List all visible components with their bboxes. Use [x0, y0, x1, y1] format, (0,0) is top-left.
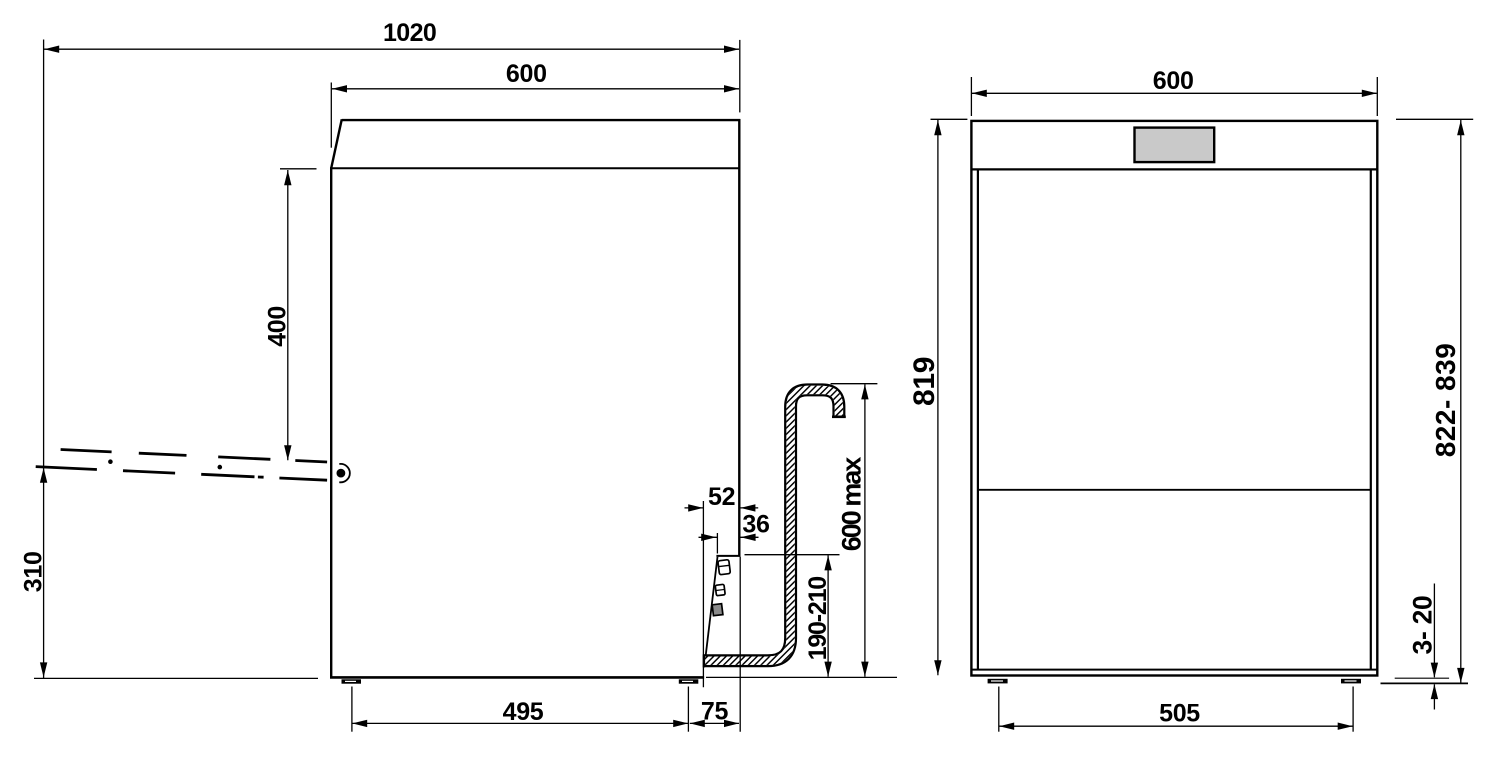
- svg-text:600 max: 600 max: [837, 457, 867, 552]
- svg-text:400: 400: [264, 306, 292, 347]
- svg-text:1020: 1020: [383, 19, 436, 47]
- svg-text:52: 52: [708, 483, 735, 511]
- svg-text:36: 36: [742, 511, 769, 539]
- svg-text:75: 75: [701, 698, 729, 726]
- svg-text:819: 819: [908, 357, 941, 406]
- svg-text:495: 495: [503, 698, 544, 726]
- svg-text:3- 20: 3- 20: [1408, 596, 1438, 655]
- svg-text:310: 310: [19, 551, 47, 592]
- svg-text:600: 600: [1153, 67, 1194, 95]
- svg-text:600: 600: [506, 60, 547, 88]
- svg-text:822- 839: 822- 839: [1430, 343, 1461, 458]
- svg-text:190-210: 190-210: [804, 577, 832, 661]
- svg-text:505: 505: [1159, 700, 1200, 728]
